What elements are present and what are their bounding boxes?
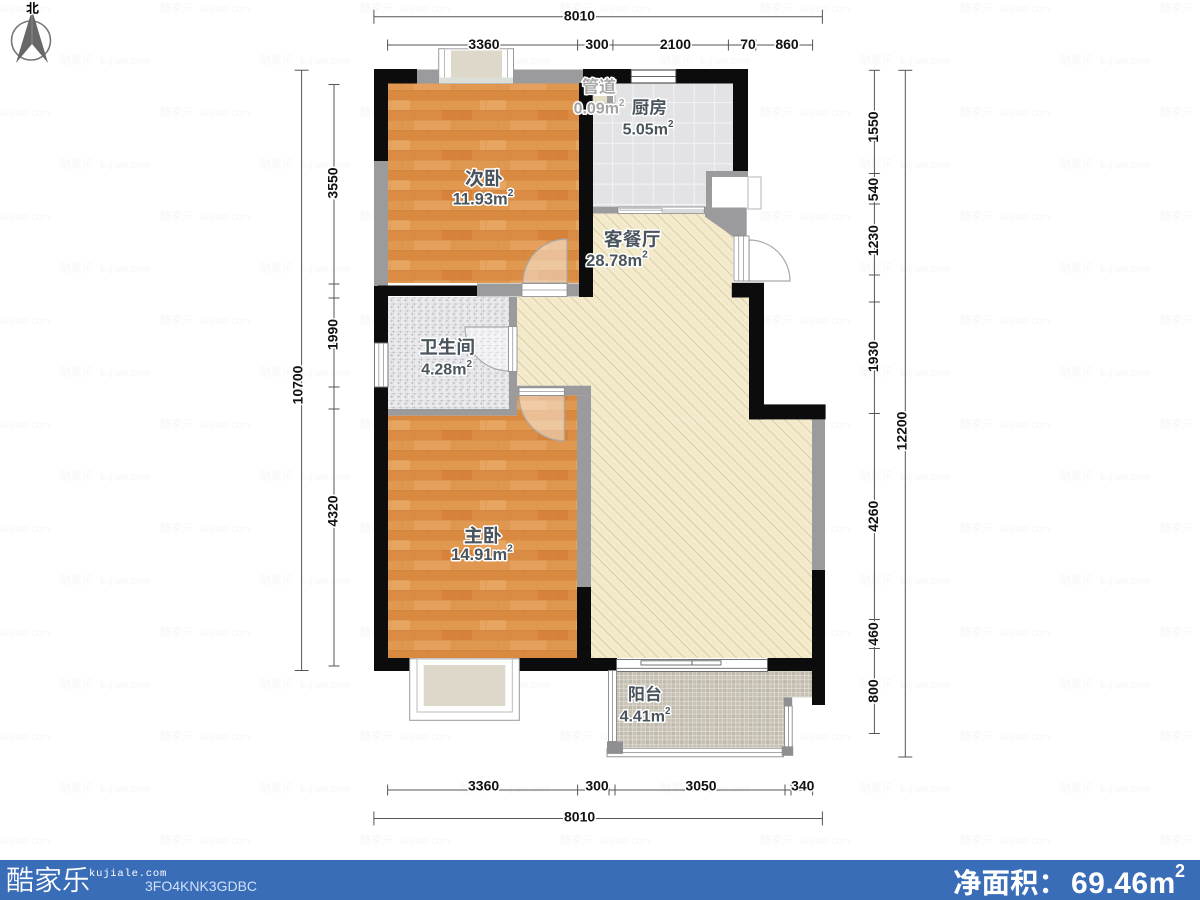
svg-text:1230: 1230 [865, 225, 881, 256]
svg-text:28.78m2: 28.78m2 [586, 249, 648, 270]
svg-text:2: 2 [1175, 861, 1185, 881]
svg-text:1930: 1930 [865, 341, 881, 372]
svg-text:1550: 1550 [865, 111, 881, 142]
svg-text:70: 70 [740, 36, 756, 52]
svg-text:540: 540 [865, 178, 881, 202]
svg-text:460: 460 [865, 622, 881, 646]
svg-text:800: 800 [865, 679, 881, 703]
svg-text:5.05m2: 5.05m2 [623, 118, 674, 138]
svg-text:69.46m: 69.46m [1071, 867, 1176, 900]
svg-text:0.09m2: 0.09m2 [574, 97, 625, 117]
svg-text:3360: 3360 [468, 36, 499, 52]
svg-text:4.28m2: 4.28m2 [421, 358, 472, 378]
svg-text:8010: 8010 [564, 8, 595, 24]
svg-text:12200: 12200 [893, 411, 909, 450]
svg-text:4320: 4320 [325, 495, 341, 526]
svg-text:300: 300 [585, 778, 609, 794]
svg-text:340: 340 [791, 778, 815, 794]
svg-text:3550: 3550 [325, 167, 341, 198]
svg-text:300: 300 [585, 36, 609, 52]
svg-text:860: 860 [775, 36, 799, 52]
svg-text:3050: 3050 [685, 778, 716, 794]
svg-text:3360: 3360 [468, 778, 499, 794]
svg-text:8010: 8010 [564, 809, 595, 825]
svg-text:3FO4KNK3GDBC: 3FO4KNK3GDBC [145, 878, 257, 894]
svg-text:11.93m2: 11.93m2 [453, 188, 514, 209]
svg-text:2100: 2100 [660, 36, 691, 52]
svg-text:4260: 4260 [865, 501, 881, 532]
svg-text:1990: 1990 [325, 319, 341, 350]
svg-text:4.41m2: 4.41m2 [620, 705, 671, 725]
svg-text:10700: 10700 [290, 365, 306, 404]
svg-text:14.91m2: 14.91m2 [451, 543, 513, 564]
